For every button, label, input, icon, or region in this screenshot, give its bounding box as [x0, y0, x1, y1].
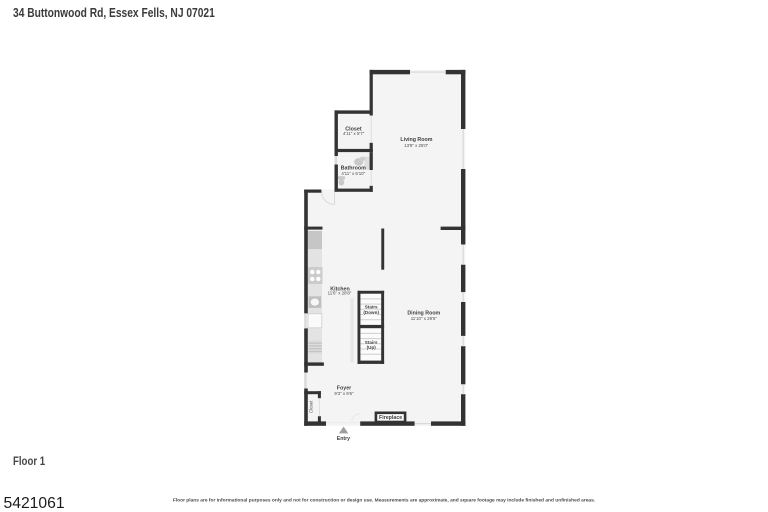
svg-text:4'11" x 5'7": 4'11" x 5'7": [343, 131, 365, 136]
svg-text:34 Buttonwood Rd, Essex Fells,: 34 Buttonwood Rd, Essex Fells, NJ 07021: [13, 7, 215, 20]
svg-text:9'3" x 9'6": 9'3" x 9'6": [334, 391, 354, 396]
svg-text:Closet: Closet: [309, 400, 314, 413]
svg-text:Floor plans are for informatio: Floor plans are for informational purpos…: [173, 498, 596, 504]
svg-text:Fireplace: Fireplace: [379, 415, 402, 421]
svg-text:(Up): (Up): [367, 345, 377, 350]
svg-text:4'11" x 5'10": 4'11" x 5'10": [341, 171, 365, 176]
svg-text:(Down): (Down): [363, 310, 379, 315]
svg-text:Stairs: Stairs: [365, 304, 378, 309]
svg-text:11'6" x 28'8": 11'6" x 28'8": [328, 291, 352, 296]
svg-text:Entry: Entry: [337, 436, 350, 442]
svg-text:11'10" x 29'5": 11'10" x 29'5": [411, 316, 438, 321]
svg-text:5421061: 5421061: [4, 495, 65, 512]
svg-text:13'9" x 25'0": 13'9" x 25'0": [404, 143, 429, 148]
svg-text:Floor 1: Floor 1: [13, 455, 45, 468]
